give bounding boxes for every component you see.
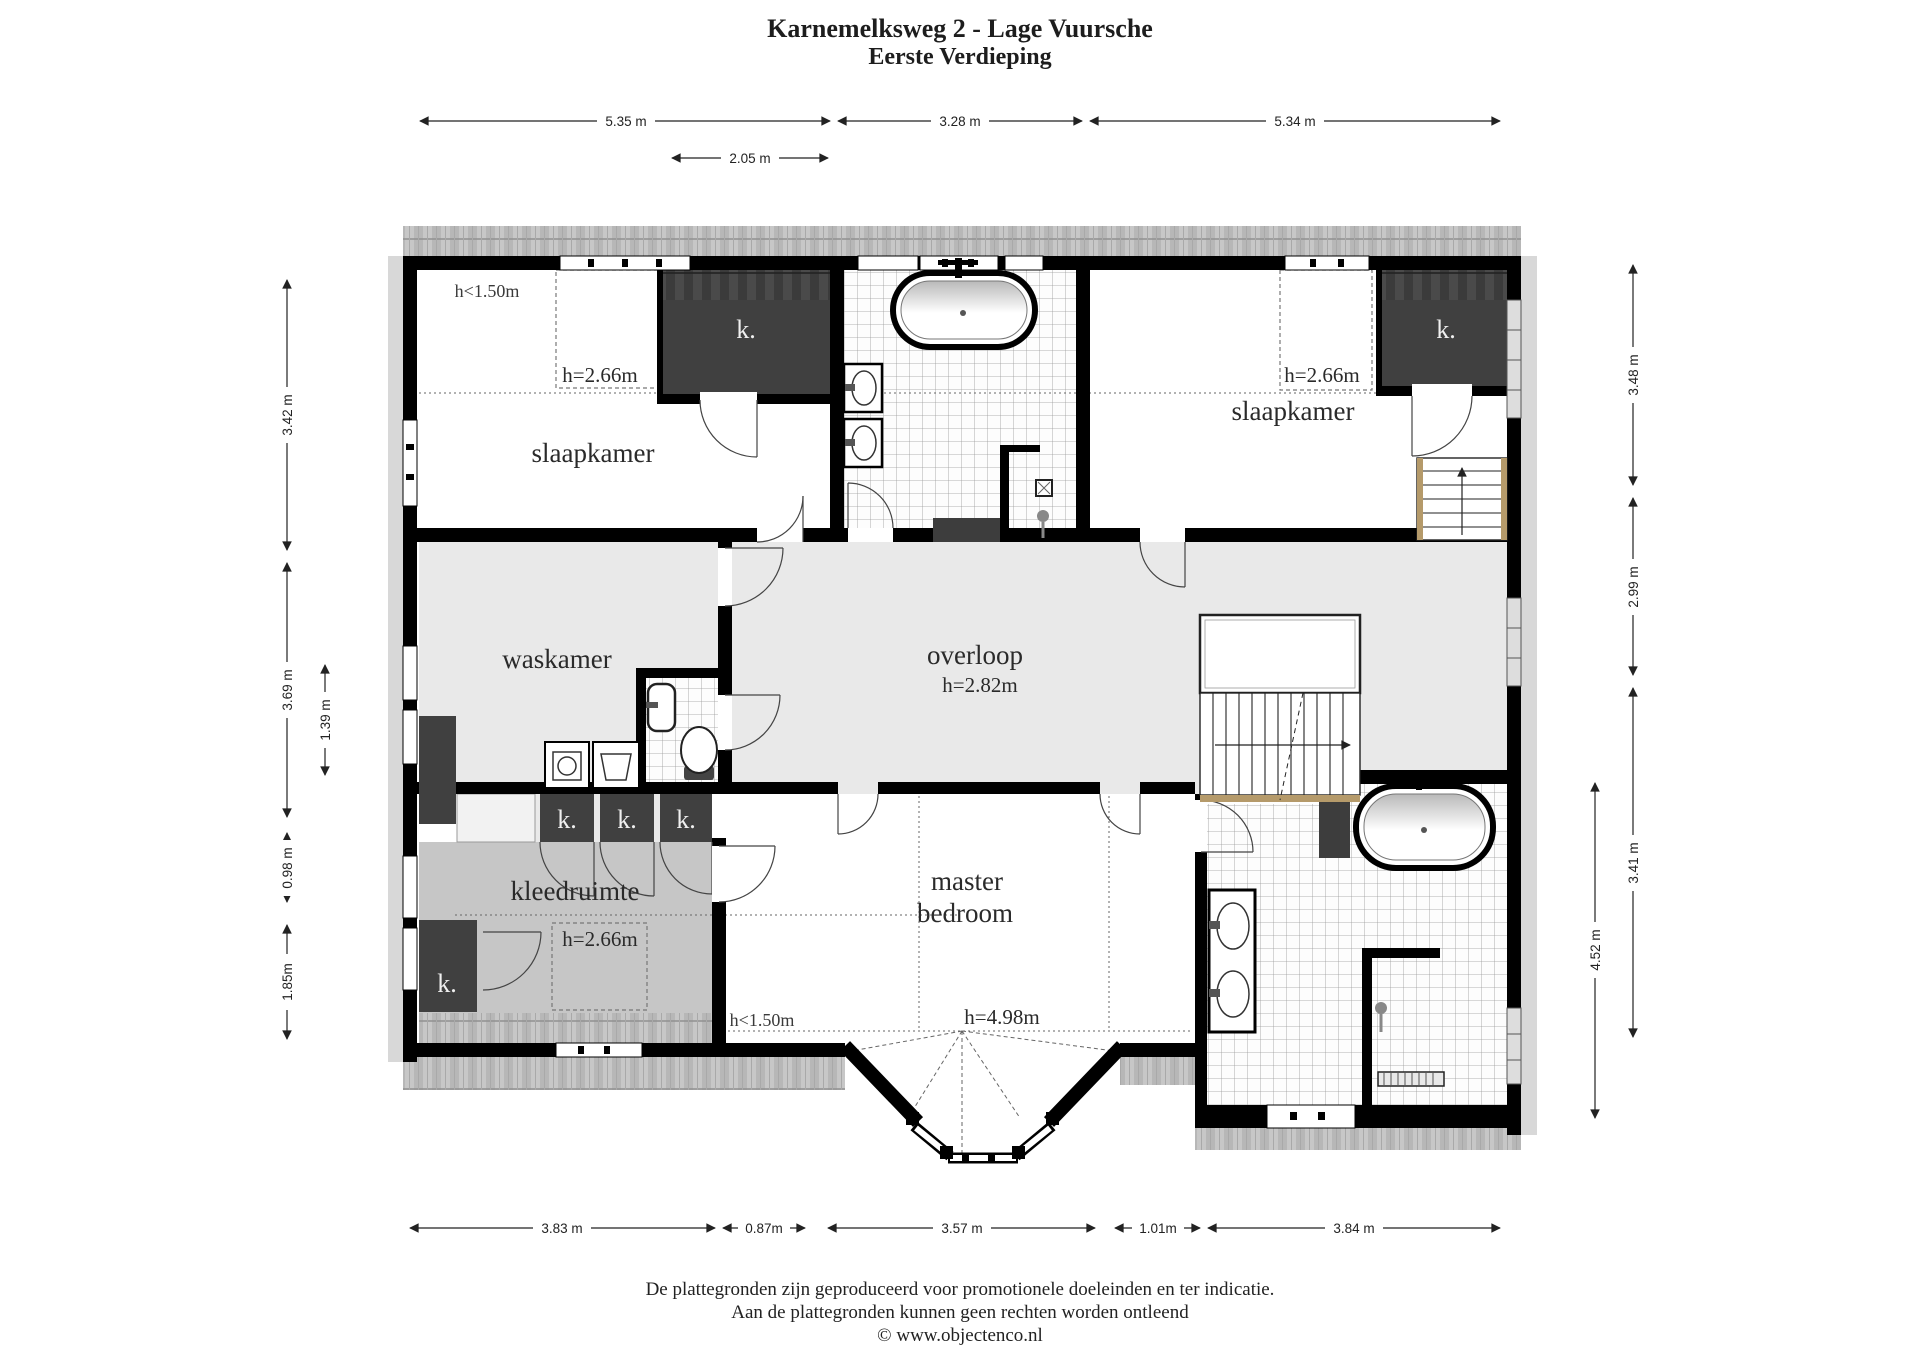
footer-line-3: © www.objectenco.nl (0, 1324, 1920, 1347)
window-left-5 (403, 928, 417, 990)
label-closet-row-3: k. (676, 805, 696, 834)
label-low-ceiling-top: h<1.50m (455, 281, 520, 301)
dim-right-2: 2.99 m (1625, 498, 1641, 675)
dim-right-outer: 4.52 m (1587, 783, 1603, 1118)
svg-text:1.39 m: 1.39 m (318, 699, 333, 740)
label-slaapkamer-left: slaapkamer (532, 438, 655, 468)
label-master-line1: master (931, 866, 1003, 896)
label-waskamer: waskamer (502, 644, 611, 674)
label-overloop: overloop (927, 640, 1023, 670)
window-bottom-dormer (556, 1043, 642, 1057)
svg-text:3.84 m: 3.84 m (1333, 1221, 1374, 1236)
dim-top-1: 5.35 m (420, 113, 830, 129)
label-kleedruimte-height: h=2.66m (562, 927, 637, 951)
label-master-line2: bedroom (917, 898, 1013, 928)
footer-line-1: De plattegronden zijn geproduceerd voor … (0, 1278, 1920, 1301)
label-closet-right: k. (1436, 315, 1456, 344)
dim-left-4: 1.85m (279, 925, 295, 1039)
dim-left-1: 3.42 m (279, 280, 295, 550)
label-kleedruimte: kleedruimte (511, 876, 640, 906)
window-left-4 (403, 856, 417, 918)
label-low-ceiling-bottom: h<1.50m (730, 1010, 795, 1030)
dim-bottom-5: 3.84 m (1208, 1220, 1500, 1236)
floor-overloop (732, 542, 1507, 794)
svg-text:1.01m: 1.01m (1139, 1221, 1177, 1236)
laundry-basket (593, 742, 639, 788)
svg-text:5.35 m: 5.35 m (605, 114, 646, 129)
dim-left-inner: 1.39 m (317, 665, 333, 775)
label-master-height: h=4.98m (964, 1005, 1039, 1029)
label-slaapkamer-right: slaapkamer (1232, 396, 1355, 426)
label-closet-row-2: k. (617, 805, 637, 834)
svg-text:5.34 m: 5.34 m (1274, 114, 1315, 129)
dim-bottom-4: 1.01m (1115, 1220, 1200, 1236)
dim-left-3: 0.98 m (279, 833, 295, 902)
dim-right-1: 3.48 m (1625, 265, 1641, 485)
closet-waskamer (419, 716, 456, 824)
label-closet-left: k. (736, 315, 756, 344)
double-washbasin (1209, 890, 1255, 1032)
footer: De plattegronden zijn geproduceerd voor … (0, 1278, 1920, 1347)
svg-text:3.41 m: 3.41 m (1626, 842, 1641, 883)
svg-text:2.99 m: 2.99 m (1626, 566, 1641, 607)
floorplan-page: Karnemelksweg 2 - Lage Vuursche Eerste V… (0, 0, 1920, 1358)
label-closet-kleedruimte: k. (437, 969, 457, 998)
shower-head-center (1037, 510, 1049, 522)
dim-bottom-3: 3.57 m (828, 1220, 1095, 1236)
dim-top-3: 5.34 m (1090, 113, 1500, 129)
svg-text:1.85m: 1.85m (280, 963, 295, 1001)
stairwell-void (1200, 615, 1360, 693)
svg-text:4.52 m: 4.52 m (1588, 929, 1603, 970)
window-dormer-right (1285, 256, 1369, 270)
shower-head-master (1375, 1002, 1387, 1014)
dim-top-2: 3.28 m (838, 113, 1082, 129)
roof-window-right-2 (1507, 598, 1521, 686)
toilet (681, 727, 717, 780)
shower-drain-master (1378, 1072, 1444, 1086)
stairs-main (1200, 693, 1360, 795)
window-left-3 (403, 710, 417, 764)
label-dormer-height-left: h=2.66m (562, 363, 637, 387)
label-overloop-height: h=2.82m (942, 673, 1017, 697)
floorplan-drawing: h<1.50m h=2.66m slaapkamer k. h=2.66m sl… (0, 0, 1920, 1358)
washbasin-1 (844, 364, 882, 412)
roof-window-right-1 (1507, 300, 1521, 418)
window-bath-top-1 (858, 256, 918, 270)
window-bath-top-3 (1005, 256, 1043, 270)
svg-text:3.48 m: 3.48 m (1626, 354, 1641, 395)
footer-line-2: Aan de plattegronden kunnen geen rechten… (0, 1301, 1920, 1324)
svg-text:3.28 m: 3.28 m (939, 114, 980, 129)
washbasin-2 (844, 419, 882, 467)
label-closet-row-1: k. (557, 805, 577, 834)
dim-bottom-1: 3.83 m (410, 1220, 715, 1236)
label-dormer-height-right: h=2.66m (1284, 363, 1359, 387)
svg-text:3.42 m: 3.42 m (280, 394, 295, 435)
dim-bottom-2: 0.87m (723, 1220, 805, 1236)
washing-machine (545, 742, 589, 788)
dim-left-2: 3.69 m (279, 563, 295, 817)
closet-kleedruimte (419, 920, 477, 1012)
svg-text:0.98 m: 0.98 m (280, 847, 295, 888)
window-left-2 (403, 646, 417, 700)
svg-text:3.83 m: 3.83 m (541, 1221, 582, 1236)
svg-text:3.69 m: 3.69 m (280, 669, 295, 710)
dim-top-inner: 2.05 m (672, 150, 828, 166)
svg-text:3.57 m: 3.57 m (941, 1221, 982, 1236)
roof-window-right-3 (1507, 1008, 1521, 1084)
dim-right-3: 3.41 m (1625, 688, 1641, 1037)
svg-text:2.05 m: 2.05 m (729, 151, 770, 166)
svg-text:0.87m: 0.87m (745, 1221, 783, 1236)
window-left-1 (403, 420, 417, 506)
window-bottom-right (1267, 1105, 1355, 1128)
toilet-basin (646, 684, 675, 731)
